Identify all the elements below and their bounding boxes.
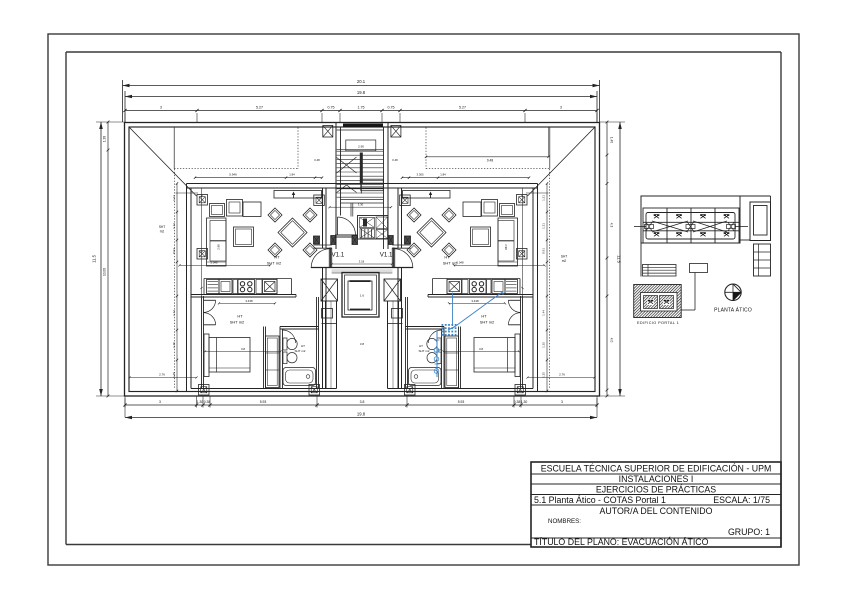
svg-text:3.30: 3.30 xyxy=(358,203,364,207)
svg-text:SHT m2: SHT m2 xyxy=(267,261,282,266)
svg-text:0.38: 0.38 xyxy=(514,400,521,404)
svg-text:m2: m2 xyxy=(160,230,165,234)
svg-text:0.75: 0.75 xyxy=(328,106,335,110)
svg-text:HT: HT xyxy=(444,255,450,260)
svg-text:m2: m2 xyxy=(562,259,567,263)
svg-text:3.438: 3.438 xyxy=(245,299,253,303)
svg-text:HT: HT xyxy=(419,344,423,348)
svg-text:3: 3 xyxy=(560,106,562,110)
svg-text:5.27: 5.27 xyxy=(459,106,466,110)
svg-text:1.21: 1.21 xyxy=(172,195,176,201)
svg-text:5.93: 5.93 xyxy=(260,400,267,404)
svg-text:1.21: 1.21 xyxy=(172,223,176,229)
svg-text:HT: HT xyxy=(274,255,280,260)
svg-text:1.25: 1.25 xyxy=(542,342,546,348)
svg-text:3.8: 3.8 xyxy=(360,400,365,404)
svg-text:1.84: 1.84 xyxy=(440,173,446,177)
svg-text:1.84: 1.84 xyxy=(289,173,295,177)
svg-text:1.25: 1.25 xyxy=(542,372,546,378)
svg-text:5.946: 5.946 xyxy=(229,173,237,177)
svg-text:1.21: 1.21 xyxy=(542,223,546,229)
svg-text:SHT: SHT xyxy=(561,255,567,259)
svg-text:11.5: 11.5 xyxy=(92,254,97,263)
svg-text:TÍTULO DEL PLANO: EVACUACIÓN Á: TÍTULO DEL PLANO: EVACUACIÓN ÁTICO xyxy=(534,537,709,547)
svg-text:0.48: 0.48 xyxy=(314,158,320,162)
svg-text:SHT m2: SHT m2 xyxy=(295,349,306,353)
svg-text:2.76: 2.76 xyxy=(159,373,165,377)
svg-text:19.8: 19.8 xyxy=(357,90,366,95)
svg-text:0.75: 0.75 xyxy=(388,106,395,110)
svg-text:3.8: 3.8 xyxy=(241,347,245,351)
svg-text:SHT m2: SHT m2 xyxy=(419,349,430,353)
svg-text:EDIFICIO PORTAL 1: EDIFICIO PORTAL 1 xyxy=(637,321,679,325)
svg-text:2.98: 2.98 xyxy=(504,244,508,250)
svg-text:INSTALACIONES I: INSTALACIONES I xyxy=(619,474,694,484)
svg-text:HT: HT xyxy=(481,314,487,319)
svg-text:1.40: 1.40 xyxy=(610,137,614,143)
svg-text:3.305: 3.305 xyxy=(417,173,424,177)
svg-text:SHT m2: SHT m2 xyxy=(230,320,245,325)
svg-text:SHT: SHT xyxy=(159,225,165,229)
svg-text:HT: HT xyxy=(237,314,243,319)
svg-text:4.0: 4.0 xyxy=(610,338,614,343)
svg-text:2.76: 2.76 xyxy=(559,373,565,377)
svg-text:3: 3 xyxy=(160,106,162,110)
svg-text:1.44: 1.44 xyxy=(172,310,176,316)
svg-text:2.90: 2.90 xyxy=(358,145,364,149)
svg-text:HT: HT xyxy=(301,344,305,348)
svg-text:EJERCICIOS DE PRÁCTICAS: EJERCICIOS DE PRÁCTICAS xyxy=(596,485,716,495)
svg-text:9.48: 9.48 xyxy=(487,159,493,163)
svg-text:5.1 Planta Ático - COTAS Porta: 5.1 Planta Ático - COTAS Portal 1 xyxy=(534,495,666,505)
svg-text:3.18: 3.18 xyxy=(359,260,365,264)
svg-text:3.438: 3.438 xyxy=(471,299,479,303)
svg-text:5.048: 5.048 xyxy=(211,261,218,265)
svg-text:1.75: 1.75 xyxy=(358,106,365,110)
svg-text:10.08: 10.08 xyxy=(103,268,107,276)
svg-text:1.21: 1.21 xyxy=(542,195,546,201)
svg-text:4.3: 4.3 xyxy=(610,223,614,228)
svg-text:ESCALA: 1/75: ESCALA: 1/75 xyxy=(713,495,770,505)
svg-text:1.30: 1.30 xyxy=(521,400,528,404)
svg-text:1.44: 1.44 xyxy=(542,310,546,316)
svg-text:V1.1: V1.1 xyxy=(380,252,393,259)
svg-text:NOMBRES:: NOMBRES: xyxy=(548,518,581,525)
svg-text:5.048: 5.048 xyxy=(457,261,464,265)
svg-text:3.8: 3.8 xyxy=(360,342,365,346)
svg-text:5.27: 5.27 xyxy=(256,106,263,110)
svg-text:1.38: 1.38 xyxy=(103,136,107,142)
svg-text:20.1: 20.1 xyxy=(357,79,366,84)
svg-text:ESCUELA TÉCNICA SUPERIOR DE ED: ESCUELA TÉCNICA SUPERIOR DE EDIFICACIÓN … xyxy=(541,464,772,474)
svg-text:19.8: 19.8 xyxy=(357,412,366,417)
svg-text:GRUPO: 1: GRUPO: 1 xyxy=(728,527,770,537)
svg-text:0.91: 0.91 xyxy=(172,248,176,254)
svg-text:AUTOR/A DEL CONTENIDO: AUTOR/A DEL CONTENIDO xyxy=(600,506,713,516)
svg-text:1.25: 1.25 xyxy=(172,342,176,348)
svg-text:PLANTA ÁTICO: PLANTA ÁTICO xyxy=(714,307,752,314)
svg-text:3.8: 3.8 xyxy=(479,347,483,351)
svg-text:V1.1: V1.1 xyxy=(332,252,345,259)
svg-text:5.93: 5.93 xyxy=(458,400,465,404)
svg-text:1.30: 1.30 xyxy=(197,400,204,404)
svg-text:0.48: 0.48 xyxy=(392,158,398,162)
svg-text:SHT m2: SHT m2 xyxy=(480,320,495,325)
svg-text:3: 3 xyxy=(159,400,161,404)
svg-text:3: 3 xyxy=(561,400,563,404)
svg-text:11.5: 11.5 xyxy=(617,255,622,264)
svg-text:0.38: 0.38 xyxy=(204,400,211,404)
svg-text:1.6: 1.6 xyxy=(360,294,365,298)
svg-text:0.91: 0.91 xyxy=(542,248,546,254)
svg-text:1.25: 1.25 xyxy=(172,372,176,378)
svg-text:2.98: 2.98 xyxy=(217,244,221,250)
